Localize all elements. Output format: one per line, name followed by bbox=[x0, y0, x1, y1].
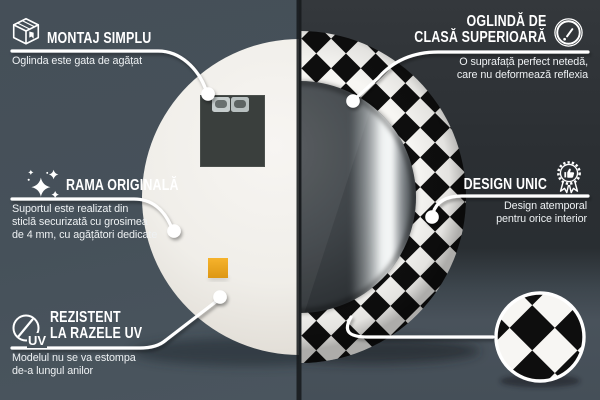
uv-icon-label: UV bbox=[28, 333, 46, 348]
connector-dot bbox=[346, 94, 360, 108]
callout-title-rama: RAMA ORIGINALĂ bbox=[66, 178, 179, 194]
callout-title-uv: REZISTENT LA RAZELE UV bbox=[50, 310, 142, 341]
product-infographic: MONTAJ SIMPLU Oglinda este gata de agăța… bbox=[0, 0, 600, 400]
callout-body-design: Design atemporal pentru orice interior bbox=[496, 200, 587, 226]
callout-body-montaj: Oglinda este gata de agățat bbox=[12, 55, 142, 68]
thumbs-up-glyph bbox=[564, 169, 574, 178]
connector-dot bbox=[167, 224, 181, 238]
hanging-plate bbox=[200, 95, 265, 167]
connector-dot bbox=[201, 87, 215, 101]
package-icon bbox=[9, 14, 43, 48]
uv-sun-icon: UV bbox=[10, 311, 48, 349]
connector-dot bbox=[213, 290, 227, 304]
award-badge-icon bbox=[553, 159, 585, 195]
callout-body-oglinda: O suprafață perfect netedă, care nu defo… bbox=[457, 56, 588, 82]
sparkles-icon bbox=[25, 166, 61, 202]
mirror-icon bbox=[552, 16, 585, 49]
connector-dot bbox=[425, 210, 439, 224]
callout-title-design: DESIGN UNIC bbox=[463, 177, 547, 193]
detail-pattern-swatch bbox=[496, 293, 584, 381]
callout-title-oglinda: OGLINDĂ DE CLASĂ SUPERIOARĂ bbox=[414, 14, 546, 45]
callout-title-montaj: MONTAJ SIMPLU bbox=[47, 31, 151, 47]
split-divider bbox=[297, 0, 302, 400]
orange-sticker bbox=[208, 258, 228, 278]
callout-body-rama: Suportul este realizat din sticlă securi… bbox=[12, 203, 157, 242]
callout-body-uv: Modelul nu se va estompa de-a lungul ani… bbox=[12, 352, 136, 378]
detail-zoom-circle bbox=[496, 293, 584, 388]
